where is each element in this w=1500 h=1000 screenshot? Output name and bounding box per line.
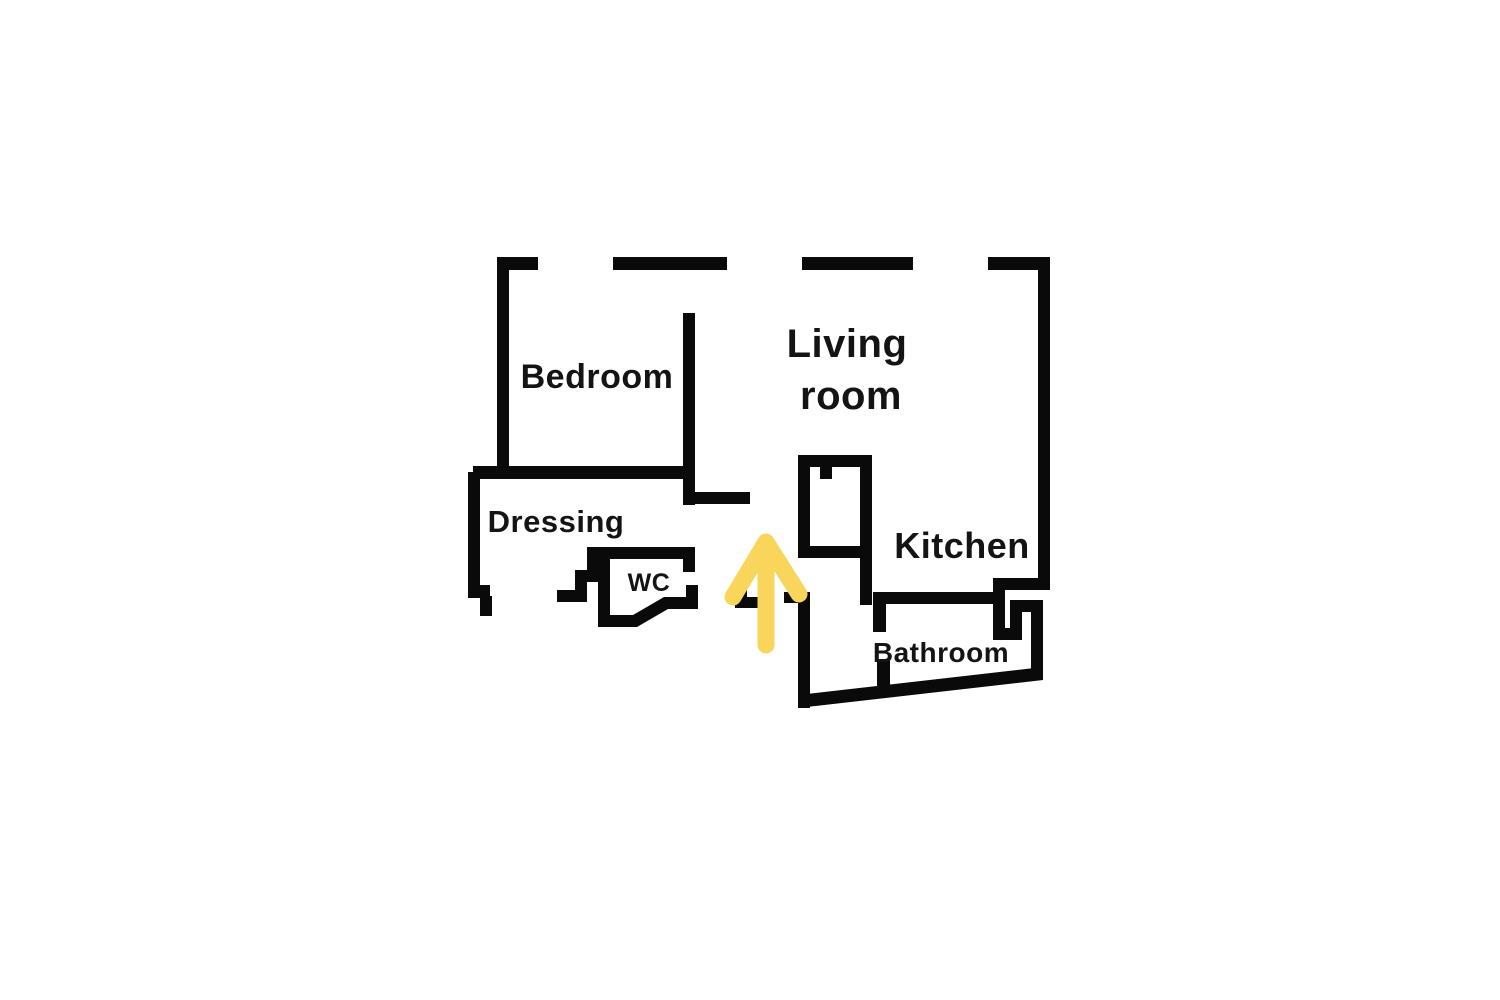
wall: [468, 472, 480, 592]
wall: [802, 257, 913, 270]
wall: [557, 590, 575, 602]
wall: [820, 467, 832, 479]
wall: [497, 466, 695, 479]
wall: [1038, 257, 1050, 590]
wall: [683, 492, 750, 504]
wall: [598, 597, 698, 627]
wall: [860, 455, 872, 605]
room-label-kitchen: Kitchen: [894, 525, 1030, 566]
wall: [683, 313, 695, 505]
room-label-dressing: Dressing: [488, 504, 625, 539]
room-label-bedroom: Bedroom: [521, 358, 674, 396]
wall: [497, 257, 509, 479]
wall: [873, 604, 886, 632]
room-label-living-line2: room: [800, 374, 902, 418]
wall: [993, 578, 1050, 590]
wall: [686, 585, 698, 597]
entrance-arrow-icon: [733, 542, 799, 645]
room-label-wc: WC: [628, 569, 671, 597]
room-label-bathroom: Bathroom: [873, 637, 1009, 668]
wall: [873, 592, 1005, 604]
wall: [587, 547, 695, 559]
wall: [683, 559, 695, 572]
wall: [798, 667, 1043, 708]
wall: [798, 455, 810, 558]
wall: [1010, 600, 1043, 612]
wall: [480, 596, 492, 616]
wall: [598, 559, 610, 617]
wall: [798, 546, 872, 558]
room-label-living-line1: Living: [787, 322, 908, 366]
wall: [798, 592, 810, 708]
floor-plan-diagram: Bedroom Living room Dressing WC Kitchen …: [0, 0, 1500, 1000]
floor-plan-canvas: Bedroom Living room Dressing WC Kitchen …: [0, 0, 1500, 1000]
wall: [613, 257, 727, 270]
